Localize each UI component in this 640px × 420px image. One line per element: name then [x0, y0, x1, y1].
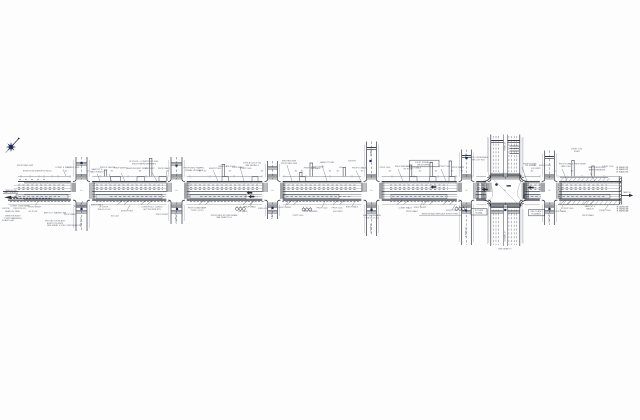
- svg-text:EXIST WALK: EXIST WALK: [91, 204, 104, 207]
- svg-text:40': 40': [111, 170, 114, 172]
- svg-text:S 1ST ST: S 1ST ST: [549, 213, 551, 223]
- svg-text:MATCH EXIST: MATCH EXIST: [4, 191, 18, 194]
- svg-text:EXIST POLE: EXIST POLE: [209, 168, 222, 170]
- svg-text:EX R/W: EX R/W: [348, 161, 355, 163]
- svg-text:PROP C&G: PROP C&G: [293, 215, 304, 217]
- svg-text:EXIST DRWY: EXIST DRWY: [279, 207, 292, 209]
- svg-text:STA 16+75.00: STA 16+75.00: [366, 216, 380, 219]
- svg-text:40': 40': [389, 170, 392, 172]
- svg-text:PROP WALK: PROP WALK: [244, 206, 257, 209]
- svg-text:MAIN ST: MAIN ST: [503, 141, 506, 151]
- svg-text:S MAIN ST: S MAIN ST: [503, 230, 506, 242]
- svg-text:SEE SHEET 4 FOR CONTINUATION: SEE SHEET 4 FOR CONTINUATION: [47, 224, 82, 227]
- svg-text:PROP RAMP: PROP RAMP: [74, 205, 87, 208]
- svg-text:PROP C&G: PROP C&G: [440, 166, 451, 168]
- svg-text:PROP C&G: PROP C&G: [241, 168, 252, 170]
- svg-text:PROP ROW 40': PROP ROW 40': [37, 171, 52, 173]
- svg-text:EX WALK: EX WALK: [311, 167, 321, 170]
- svg-text:STA 11+52.00: STA 11+52.00: [98, 208, 112, 211]
- svg-text:IMPROVEMENTS: IMPROVEMENTS: [589, 169, 606, 171]
- svg-text:EXIST C&G: EXIST C&G: [603, 166, 614, 168]
- svg-text:PROP SIGNING: PROP SIGNING: [303, 211, 318, 213]
- svg-text:EXIST ROW 40': EXIST ROW 40': [23, 171, 38, 173]
- svg-text:40': 40': [571, 170, 574, 172]
- svg-text:40': 40': [361, 170, 364, 172]
- svg-text:40': 40': [337, 171, 340, 173]
- svg-text:WIDTH IMPROVEMENTS: WIDTH IMPROVEMENTS: [132, 164, 157, 166]
- svg-text:PROPOSED R/W: PROPOSED R/W: [17, 165, 33, 167]
- svg-text:EX POLE: EX POLE: [29, 211, 38, 213]
- svg-text:S OAK ST: S OAK ST: [175, 212, 178, 223]
- svg-text:32': 32': [461, 170, 464, 172]
- svg-text:MATCH: MATCH: [624, 191, 632, 194]
- svg-text:HYDRANT: HYDRANT: [531, 212, 542, 215]
- svg-text:PROP C&G: PROP C&G: [69, 167, 80, 169]
- svg-text:PROP DRWY: PROP DRWY: [156, 214, 169, 216]
- svg-text:40': 40': [261, 171, 264, 173]
- svg-text:PROP DRWY: PROP DRWY: [574, 164, 587, 166]
- svg-text:40': 40': [301, 170, 304, 172]
- svg-text:32': 32': [451, 170, 454, 172]
- svg-text:EX R/W: EX R/W: [2, 208, 9, 210]
- svg-text:EX DRWY: EX DRWY: [333, 211, 343, 213]
- svg-text:SAWCUT LINE: SAWCUT LINE: [320, 161, 335, 164]
- svg-text:BE MODIFIED: BE MODIFIED: [417, 164, 431, 166]
- svg-text:MATCH EXIST: MATCH EXIST: [90, 170, 104, 173]
- svg-text:SIGNAL: SIGNAL: [475, 211, 483, 214]
- svg-text:PROPOSED R/W: PROPOSED R/W: [281, 163, 297, 165]
- svg-text:40': 40': [295, 170, 298, 172]
- svg-text:40': 40': [167, 170, 170, 172]
- svg-text:S MAPLE: S MAPLE: [370, 223, 373, 233]
- svg-text:PROP DRWY: PROP DRWY: [114, 168, 127, 170]
- svg-text:PROP C&G: PROP C&G: [380, 167, 391, 169]
- svg-text:CONST WALK: CONST WALK: [398, 207, 412, 210]
- svg-text:N 704512.31: N 704512.31: [617, 171, 630, 173]
- svg-text:EXIST POLE: EXIST POLE: [539, 165, 552, 167]
- svg-text:MATCH: MATCH: [586, 207, 594, 210]
- svg-text:PROP 6' WALK: PROP 6' WALK: [352, 166, 367, 169]
- svg-text:EX WALK: EX WALK: [238, 210, 248, 213]
- svg-text:GUTTER PER STD: GUTTER PER STD: [143, 209, 161, 211]
- svg-text:SEE SHEET D-4: SEE SHEET D-4: [216, 217, 232, 219]
- svg-text:S ASH ST: S ASH ST: [271, 208, 274, 219]
- svg-text:36': 36': [329, 171, 332, 173]
- svg-text:ESMT: ESMT: [574, 151, 580, 153]
- svg-text:REMOVE TREE: REMOVE TREE: [5, 211, 20, 213]
- svg-text:AND C&G: AND C&G: [561, 165, 571, 168]
- svg-text:PER STD DTL: PER STD DTL: [13, 208, 27, 210]
- svg-text:S ELM ST: S ELM ST: [81, 216, 83, 227]
- svg-text:PROP C&G: PROP C&G: [332, 208, 343, 210]
- svg-text:PROP RAMP: PROP RAMP: [554, 210, 567, 213]
- svg-text:STA 14+30: STA 14+30: [258, 207, 269, 210]
- svg-text:40': 40': [435, 171, 438, 173]
- svg-text:EX DRWY: EX DRWY: [145, 168, 155, 170]
- svg-text:EX POLE: EX POLE: [404, 168, 413, 170]
- svg-text:MAPLE: MAPLE: [370, 148, 373, 156]
- svg-text:SEE DETAIL 3: SEE DETAIL 3: [245, 164, 259, 167]
- svg-text:E 132765.08: E 132765.08: [617, 211, 629, 213]
- svg-text:PER CITY STD: PER CITY STD: [471, 159, 486, 161]
- svg-text:SEE SHEET 5: SEE SHEET 5: [498, 248, 512, 250]
- svg-text:EXIST DRWY: EXIST DRWY: [29, 207, 42, 209]
- svg-text:EXIST POLE: EXIST POLE: [446, 210, 459, 212]
- svg-text:36': 36': [139, 171, 142, 173]
- svg-text:EXIST WALK: EXIST WALK: [346, 206, 359, 209]
- svg-text:SCALE 1=40: SCALE 1=40: [2, 219, 15, 222]
- svg-text:EX SIGNAL: EX SIGNAL: [526, 164, 538, 167]
- svg-text:40': 40': [204, 171, 207, 173]
- svg-text:C&G: C&G: [339, 167, 344, 169]
- svg-text:PROP WALK: PROP WALK: [582, 214, 595, 217]
- svg-text:PROP C&G: PROP C&G: [317, 208, 328, 210]
- svg-text:40': 40': [419, 171, 422, 173]
- svg-text:PROP RAMP: PROP RAMP: [452, 166, 465, 169]
- svg-text:EX C&G: EX C&G: [111, 215, 119, 217]
- svg-text:40': 40': [65, 170, 68, 172]
- svg-text:PROP DRWY: PROP DRWY: [414, 207, 427, 209]
- svg-text:TYPE 2 (TYP): TYPE 2 (TYP): [191, 210, 204, 212]
- svg-text:EXIST POLE: EXIST POLE: [121, 211, 134, 213]
- svg-text:EXIST C&G: EXIST C&G: [600, 210, 611, 212]
- svg-text:PROP WALK: PROP WALK: [406, 210, 419, 213]
- svg-text:PROP C&G: PROP C&G: [563, 208, 574, 210]
- svg-text:32': 32': [229, 170, 232, 172]
- svg-text:S PINE ST: S PINE ST: [466, 226, 468, 237]
- svg-text:REMOVE AND REPLACE EXIST PVMT: REMOVE AND REPLACE EXIST PVMT: [422, 213, 459, 216]
- svg-text:PROP WALK: PROP WALK: [64, 213, 77, 216]
- svg-text:40': 40': [531, 171, 534, 173]
